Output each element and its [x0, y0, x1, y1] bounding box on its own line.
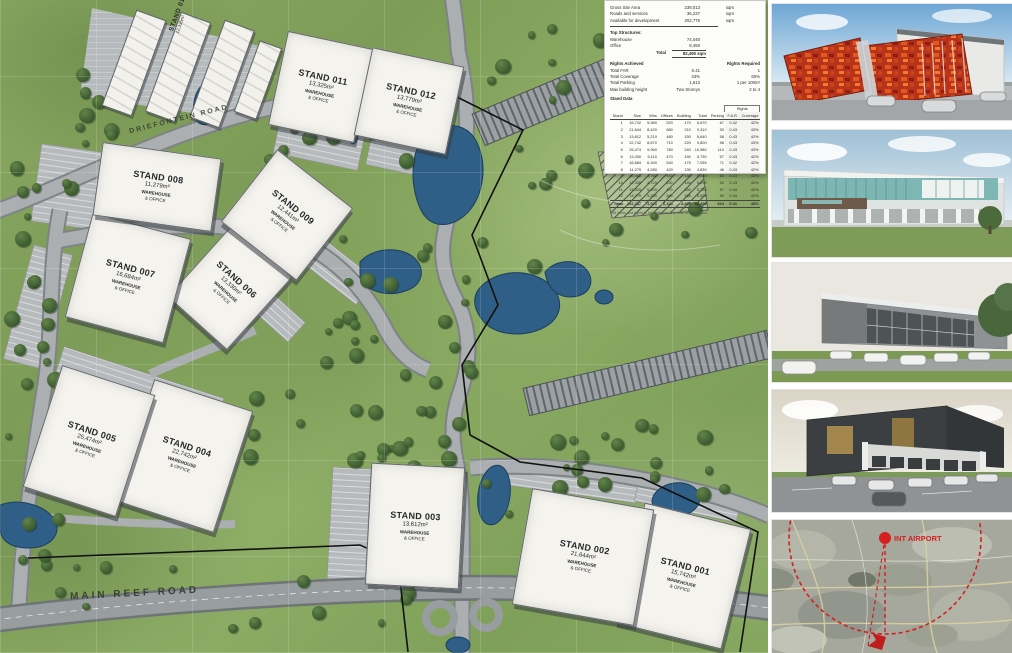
- render-grey-warehouse: [772, 263, 1012, 382]
- stand-label: STAND 00716,684m² WAREHOUSE& OFFICE: [100, 256, 157, 299]
- render-column: INT AIRPORT: [772, 0, 1012, 653]
- dark-building-illustration: [772, 390, 1012, 512]
- site-plan: STAND 010 12,335m² STAND 00115,742m² WAR…: [0, 0, 768, 653]
- stand-label: STAND 01113,325m² WAREHOUSE& OFFICE: [293, 67, 348, 108]
- stand-label: STAND 00912,441m² WAREHOUSE& OFFICE: [258, 187, 317, 243]
- stand-label: STAND 00613,330m² WAREHOUSE& OFFICE: [201, 259, 259, 316]
- table-footnote: * All areas and rights to be confirmed w…: [610, 211, 760, 216]
- locality-map-illustration: INT AIRPORT: [772, 520, 1012, 653]
- red-office-illustration: [772, 4, 1012, 120]
- airport-marker-icon: [879, 532, 891, 544]
- stand-label: STAND 00525,474m² WAREHOUSE& OFFICE: [60, 418, 118, 463]
- site-info-panel: Gross Site Area239,013sqmRoads and servi…: [604, 0, 766, 174]
- top-structures-total: Total 82,490 sqm: [610, 50, 760, 58]
- stand-label: STAND 00115,742m² WAREHOUSE& OFFICE: [655, 555, 712, 597]
- site-summary: Gross Site Area239,013sqmRoads and servi…: [610, 5, 760, 24]
- masterplan-sheet: STAND 010 12,335m² STAND 00115,742m² WAR…: [0, 0, 1012, 653]
- glass-office-illustration: [772, 130, 1012, 257]
- grey-warehouse-illustration: [772, 263, 1012, 382]
- stand-label: STAND 00811,279m² WAREHOUSE& OFFICE: [130, 168, 184, 206]
- stand-data-table: RightsStandSizeWhsOfficesBuildingTotalPa…: [610, 105, 760, 209]
- stand-002: STAND 00221,644m² WAREHOUSE& OFFICE: [512, 488, 655, 626]
- render-red-office-building: [772, 4, 1012, 120]
- stand-003: STAND 00313,612m² WAREHOUSE& OFFICE: [365, 463, 465, 590]
- stand-label: STAND 00313,612m² WAREHOUSE& OFFICE: [389, 509, 441, 543]
- rights-rows: Total FAR0.411Total Coverage43%60%Total …: [610, 68, 760, 94]
- render-glass-office-building: [772, 130, 1012, 257]
- airport-label: INT AIRPORT: [894, 534, 942, 543]
- stand-label: STAND 01213,779m² WAREHOUSE& OFFICE: [381, 81, 437, 122]
- stand-label: STAND 00422,742m² WAREHOUSE& OFFICE: [155, 433, 213, 478]
- stand-label: STAND 00221,644m² WAREHOUSE& OFFICE: [555, 537, 610, 576]
- stand-data-title: Stand Data: [610, 96, 760, 102]
- render-dark-distribution-centre: [772, 390, 1012, 512]
- top-structures-rows: Warehouse74,040Office8,450: [610, 37, 760, 50]
- locality-map: INT AIRPORT: [772, 520, 1012, 653]
- stand-012: STAND 01213,779m² WAREHOUSE& OFFICE: [354, 47, 465, 155]
